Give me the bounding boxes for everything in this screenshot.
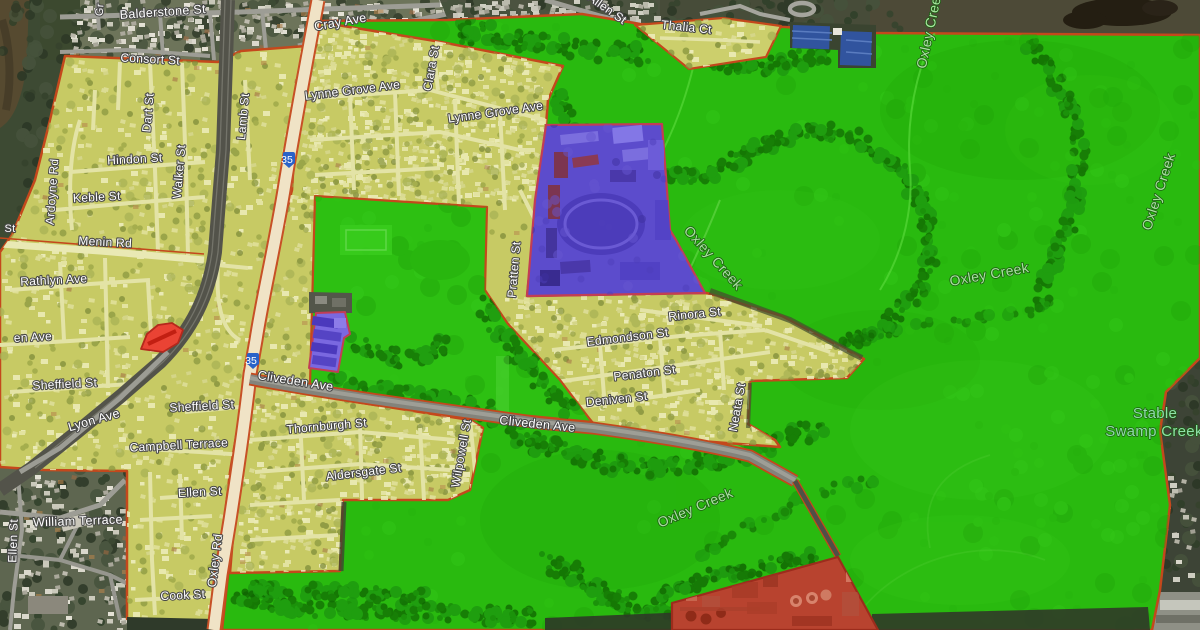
- svg-text:Menin Rd: Menin Rd: [78, 234, 132, 251]
- svg-text:Stable: Stable: [1133, 405, 1177, 422]
- svg-text:Ellen St: Ellen St: [178, 484, 223, 500]
- svg-text:Swamp Creek: Swamp Creek: [1105, 423, 1200, 440]
- svg-text:35: 35: [245, 355, 257, 367]
- svg-text:en Ave: en Ave: [13, 329, 52, 345]
- svg-text:Keble St: Keble St: [73, 189, 122, 205]
- svg-text:Ellen St: Ellen St: [5, 518, 21, 563]
- svg-text:35: 35: [281, 154, 293, 166]
- svg-text:Cook St: Cook St: [160, 587, 206, 603]
- svg-text:St: St: [5, 223, 16, 235]
- svg-text:Hindon St: Hindon St: [107, 151, 163, 168]
- svg-text:Gr: Gr: [93, 3, 106, 17]
